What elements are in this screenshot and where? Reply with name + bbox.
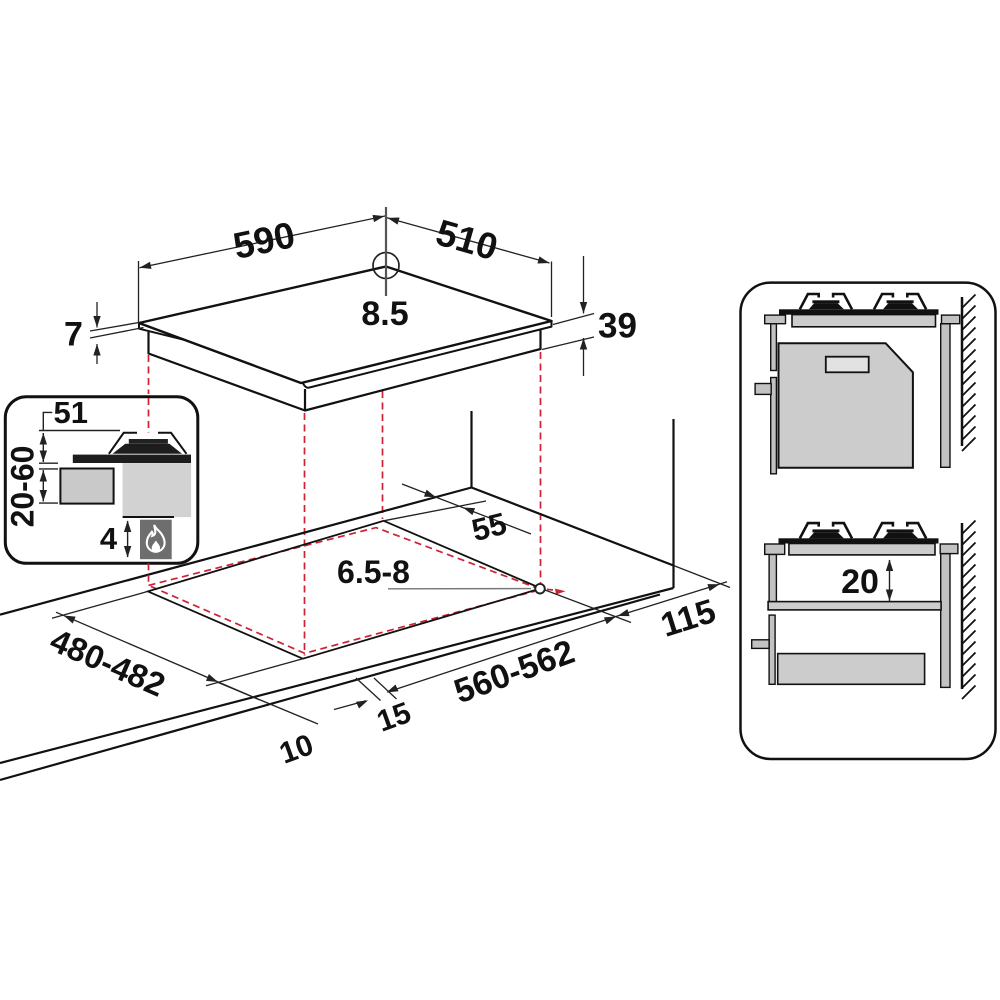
svg-text:8.5: 8.5 — [361, 295, 408, 333]
svg-text:20-60: 20-60 — [4, 446, 40, 528]
svg-text:39: 39 — [598, 307, 637, 346]
svg-text:7: 7 — [64, 316, 83, 354]
svg-text:51: 51 — [54, 395, 88, 430]
svg-text:6.5-8: 6.5-8 — [337, 554, 410, 590]
svg-text:4: 4 — [100, 521, 118, 556]
svg-text:20: 20 — [841, 563, 879, 601]
